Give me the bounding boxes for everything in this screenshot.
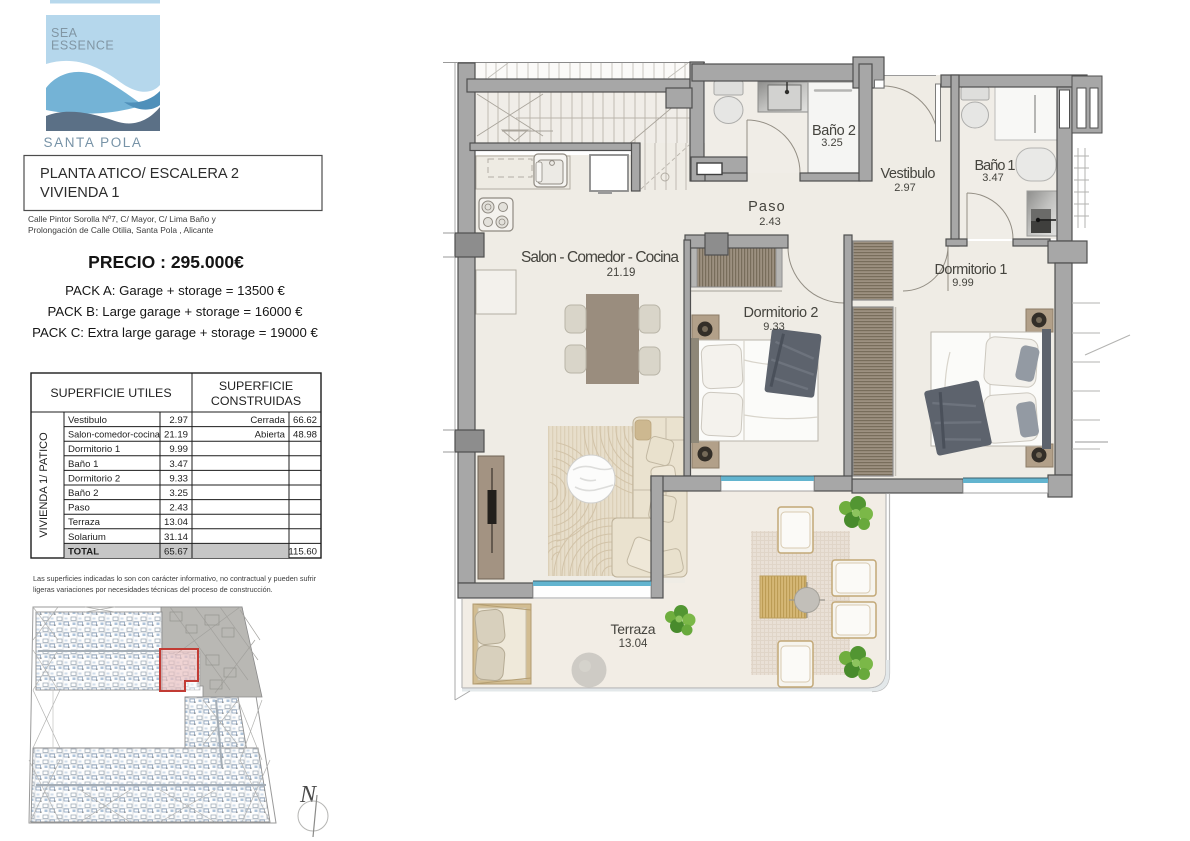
svg-text:VIVIENDA 1: VIVIENDA 1: [40, 185, 120, 201]
svg-text:Cerrada: Cerrada: [250, 415, 285, 426]
svg-text:PACK A: Garage + storage = 135: PACK A: Garage + storage = 13500 €: [65, 283, 285, 298]
svg-text:Baño 1: Baño 1: [68, 459, 98, 470]
svg-text:Dormitorio 2: Dormitorio 2: [744, 305, 819, 321]
svg-text:Paso: Paso: [748, 199, 786, 215]
svg-text:66.62: 66.62: [293, 415, 317, 426]
svg-text:13.04: 13.04: [164, 517, 189, 528]
svg-text:Terraza: Terraza: [611, 621, 656, 637]
svg-text:3.47: 3.47: [169, 459, 188, 470]
svg-text:Abierta: Abierta: [255, 430, 286, 441]
svg-text:2.97: 2.97: [894, 182, 915, 194]
svg-text:TOTAL: TOTAL: [68, 547, 99, 558]
svg-text:ESSENCE: ESSENCE: [51, 39, 114, 53]
svg-text:115.60: 115.60: [288, 547, 317, 558]
svg-text:ligeras variaciones por necesi: ligeras variaciones por necesidades técn…: [33, 585, 273, 594]
svg-text:Dormitorio 2: Dormitorio 2: [68, 473, 120, 484]
svg-text:Prolongación de Calle Otilia,: Prolongación de Calle Otilia, Santa Pola…: [28, 225, 214, 235]
svg-text:2.43: 2.43: [759, 216, 780, 228]
svg-text:Dormitorio 1: Dormitorio 1: [68, 444, 120, 455]
svg-text:65.67: 65.67: [164, 547, 188, 558]
svg-text:N: N: [299, 782, 318, 808]
svg-text:Salon - Comedor - Cocina: Salon - Comedor - Cocina: [521, 249, 679, 266]
svg-text:Vestibulo: Vestibulo: [68, 415, 107, 426]
svg-text:SUPERFICIE UTILES: SUPERFICIE UTILES: [50, 386, 171, 400]
svg-text:3.25: 3.25: [821, 137, 842, 149]
svg-text:9.99: 9.99: [169, 444, 188, 455]
svg-text:VIVIENDA 1/ PATICO: VIVIENDA 1/ PATICO: [38, 432, 50, 538]
svg-text:9.33: 9.33: [169, 473, 188, 484]
svg-text:2.97: 2.97: [169, 415, 188, 426]
svg-text:SANTA POLA: SANTA POLA: [43, 135, 142, 150]
svg-text:3.47: 3.47: [982, 172, 1003, 184]
svg-text:Baño 2: Baño 2: [68, 488, 98, 499]
svg-text:21.19: 21.19: [164, 430, 188, 441]
svg-text:Solarium: Solarium: [68, 532, 106, 543]
svg-text:13.04: 13.04: [619, 638, 648, 650]
svg-text:Vestibulo: Vestibulo: [881, 166, 936, 182]
svg-text:Calle Pintor Sorolla Nº7, C/ M: Calle Pintor Sorolla Nº7, C/ Mayor, C/ L…: [28, 214, 217, 224]
svg-text:2.43: 2.43: [169, 503, 188, 514]
svg-text:PACK B: Large garage + storage: PACK B: Large garage + storage = 16000 €: [48, 304, 304, 319]
svg-text:48.98: 48.98: [293, 430, 317, 441]
svg-text:CONSTRUIDAS: CONSTRUIDAS: [211, 394, 301, 408]
svg-text:PLANTA ATICO/ ESCALERA 2: PLANTA ATICO/ ESCALERA 2: [40, 166, 239, 182]
svg-text:Terraza: Terraza: [68, 517, 101, 528]
svg-text:9.99: 9.99: [952, 277, 973, 289]
svg-text:PRECIO : 295.000€: PRECIO : 295.000€: [88, 252, 244, 272]
svg-text:Salon-comedor-cocina: Salon-comedor-cocina: [68, 430, 161, 440]
svg-text:Dormitorio 1: Dormitorio 1: [935, 262, 1008, 278]
svg-text:9.33: 9.33: [763, 321, 784, 333]
svg-text:SUPERFICIE: SUPERFICIE: [219, 379, 293, 393]
svg-text:Las superficies indicadas lo s: Las superficies indicadas lo son con car…: [33, 574, 317, 583]
svg-text:21.19: 21.19: [607, 267, 636, 279]
svg-text:3.25: 3.25: [169, 488, 188, 499]
svg-text:Paso: Paso: [68, 503, 90, 514]
svg-text:31.14: 31.14: [164, 532, 189, 543]
svg-text:PACK C: Extra large garage + s: PACK C: Extra large garage + storage = 1…: [32, 325, 318, 340]
